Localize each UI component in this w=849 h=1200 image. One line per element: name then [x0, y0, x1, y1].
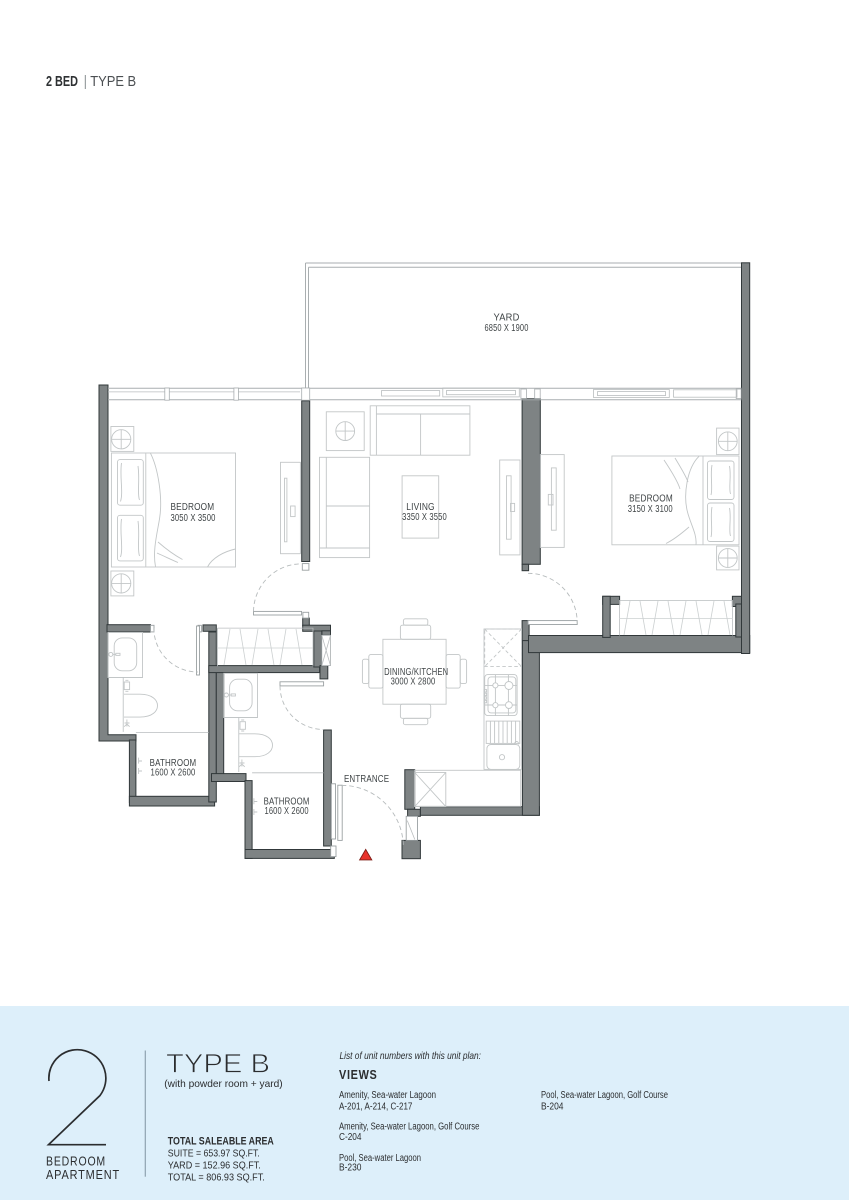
svg-text:YARD = 152.96 SQ.FT.: YARD = 152.96 SQ.FT. — [168, 1160, 261, 1172]
svg-text:3000 X 2800: 3000 X 2800 — [391, 676, 436, 687]
svg-text:3050 X 3500: 3050 X 3500 — [170, 513, 215, 524]
svg-text:3350 X 3550: 3350 X 3550 — [402, 512, 447, 523]
svg-text:TOTAL SALEABLE AREA: TOTAL SALEABLE AREA — [168, 1136, 274, 1148]
svg-text:1600 X 2600: 1600 X 2600 — [265, 806, 309, 817]
svg-text:A-201, A-214, C-217: A-201, A-214, C-217 — [339, 1101, 413, 1112]
svg-text:TYPE B: TYPE B — [90, 74, 136, 90]
svg-text:Amenity, Sea-water Lagoon: Amenity, Sea-water Lagoon — [339, 1090, 436, 1101]
svg-text:B-204: B-204 — [541, 1101, 564, 1112]
svg-text:TYPE B: TYPE B — [166, 1049, 270, 1079]
svg-text:2 BED: 2 BED — [46, 74, 78, 90]
svg-text:APARTMENT: APARTMENT — [46, 1167, 120, 1182]
svg-text:ENTRANCE: ENTRANCE — [344, 774, 389, 785]
svg-text:3150 X 3100: 3150 X 3100 — [628, 504, 673, 515]
svg-text:C-204: C-204 — [339, 1132, 362, 1143]
svg-text:List of unit numbers with this: List of unit numbers with this unit plan… — [340, 1050, 482, 1062]
svg-text:Amenity, Sea-water Lagoon, Gol: Amenity, Sea-water Lagoon, Golf Course — [339, 1121, 480, 1132]
svg-text:Pool, Sea-water Lagoon, Golf C: Pool, Sea-water Lagoon, Golf Course — [541, 1090, 668, 1101]
svg-text:|: | — [84, 74, 88, 90]
svg-text:TOTAL = 806.93 SQ.FT.: TOTAL = 806.93 SQ.FT. — [168, 1172, 265, 1184]
svg-text:1600 X 2600: 1600 X 2600 — [151, 767, 196, 778]
svg-text:BEDROOM: BEDROOM — [171, 502, 215, 513]
svg-text:SUITE = 653.97 SQ.FT.: SUITE = 653.97 SQ.FT. — [168, 1148, 260, 1160]
svg-text:VIEWS: VIEWS — [339, 1067, 378, 1082]
svg-text:(with powder room + yard): (with powder room + yard) — [164, 1078, 282, 1090]
svg-text:6850 X 1900: 6850 X 1900 — [485, 323, 529, 334]
svg-text:B-230: B-230 — [339, 1163, 362, 1174]
